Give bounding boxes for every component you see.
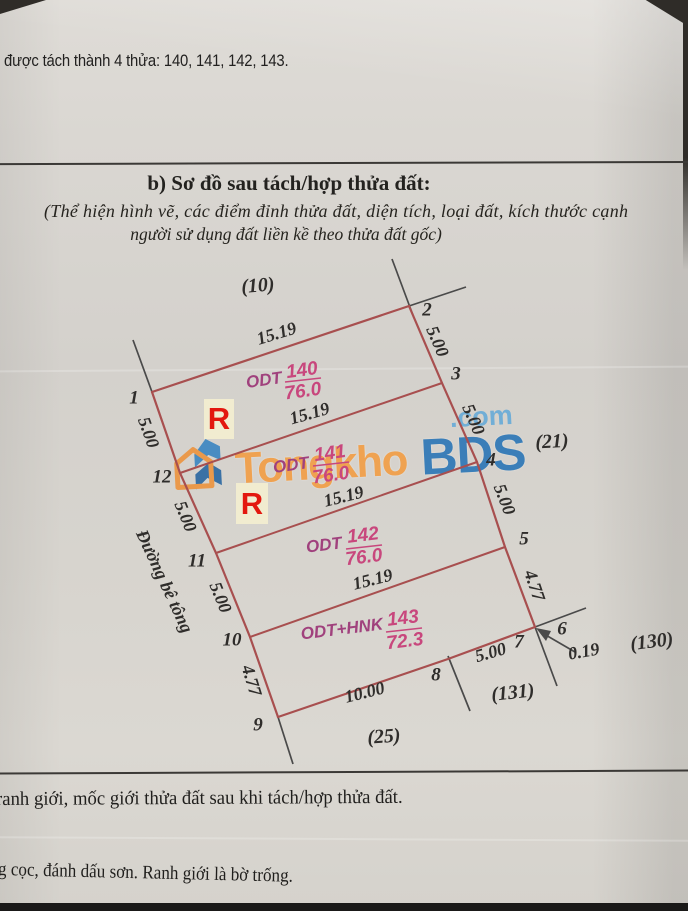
plot-142-area: 76.0 [344,545,384,570]
vertex-label-5: 5 [519,528,529,549]
vertex-label-9: 9 [253,714,263,735]
photo-bottom-edge [0,903,688,911]
edge-label-1-12: 5.00 [134,414,164,450]
plot-140-landuse: ODT [245,368,285,392]
plot-143-number: 143 [386,606,420,631]
neighbor-label-25: (25) [367,724,402,748]
edge-label-10-9: 4.77 [237,662,266,700]
plot-143-area: 72.3 [385,629,425,654]
vertex-label-6: 6 [557,618,567,639]
neighbor-label-131: (131) [490,679,535,705]
neighbor-label-130: (130) [629,628,675,655]
edge-label-10-5: 15.19 [350,565,394,594]
vertex-label-11: 11 [188,550,206,571]
vertex-label-8: 8 [431,664,441,685]
vertex-label-7: 7 [514,631,525,652]
scanned-document-page: được tách thành 4 thửa: 140, 141, 142, 1… [0,0,688,911]
road-label: Đường bê tông [132,526,198,636]
neighbor-label-10: (10) [240,273,275,298]
boundary-line-at-v9 [278,717,293,764]
plot-142-landuse: ODT [305,533,345,556]
footer-text-line1: ranh giới, mốc giới thửa đất sau khi tác… [0,787,403,811]
vertex-label-2: 2 [421,299,432,320]
edge-label-12-11: 5.00 [171,498,201,535]
red-r-marker-1: R [204,399,234,439]
boundary-line-at-v2-diagonal [409,287,466,306]
edge-label-9-8: 10.00 [342,678,386,707]
plot-141-landuse: ODT [272,453,312,477]
plot-142-number: 142 [346,523,380,548]
plot-label-141: ODT 141 76.0 [272,441,351,489]
red-r-marker-2: R [236,483,268,524]
edge-label-2-3: 5.00 [422,323,453,360]
vertex-label-3: 3 [450,363,461,384]
plot-143-landuse: ODT+HNK [300,614,386,643]
edge-label-6-7-offset: 0.19 [566,639,600,664]
plot-label-140: ODT 140 76.0 [245,358,323,405]
parcel-edge-right [409,306,535,627]
plot-label-142: ODT 142 76.0 [305,523,384,570]
vertex-label-4: 4 [485,449,496,470]
vertex-label-12: 12 [153,466,173,487]
neighbor-label-21: (21) [535,430,569,454]
edge-label-8-7: 5.00 [473,638,509,666]
vertex-label-1: 1 [129,387,139,408]
boundary-line-at-v1 [133,340,152,392]
vertex-label-10: 10 [223,629,243,650]
tick-at-v8 [448,656,470,711]
edge-label-11-10: 5.00 [206,579,236,616]
cadastral-diagram: (10) (21) (130) (131) (25) 1 2 3 4 5 6 7… [0,0,688,911]
